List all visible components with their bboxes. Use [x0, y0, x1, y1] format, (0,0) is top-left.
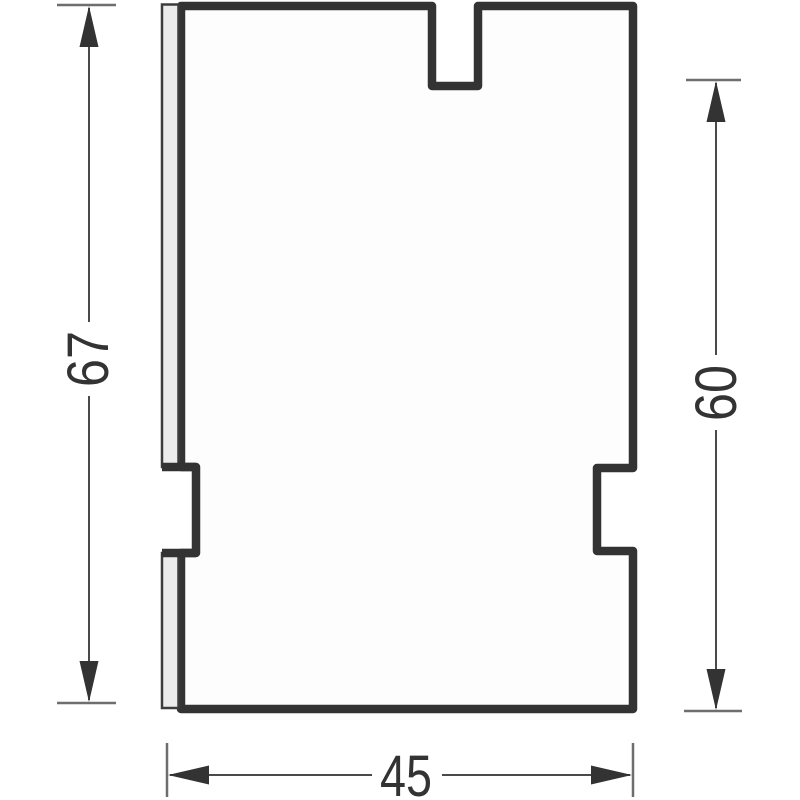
dim-bottom-arrowhead-left — [168, 766, 209, 785]
part-drawing-svg: 67 60 45 — [0, 0, 800, 800]
dim-right-arrowhead-down — [707, 669, 726, 710]
dim-right-arrowhead-up — [707, 81, 726, 122]
left-edge-strip-lower — [162, 553, 179, 708]
part-outline — [181, 6, 633, 709]
dim-left-arrowhead-up — [80, 6, 99, 47]
dim-bottom-arrowhead-right — [591, 766, 632, 785]
dim-right-label: 60 — [684, 365, 749, 421]
dim-left-arrowhead-down — [80, 661, 99, 702]
drawing-canvas: 67 60 45 — [0, 0, 800, 800]
dim-bottom-label: 45 — [380, 744, 432, 800]
left-edge-strip-upper — [162, 5, 179, 468]
dim-left-label: 67 — [56, 331, 121, 387]
